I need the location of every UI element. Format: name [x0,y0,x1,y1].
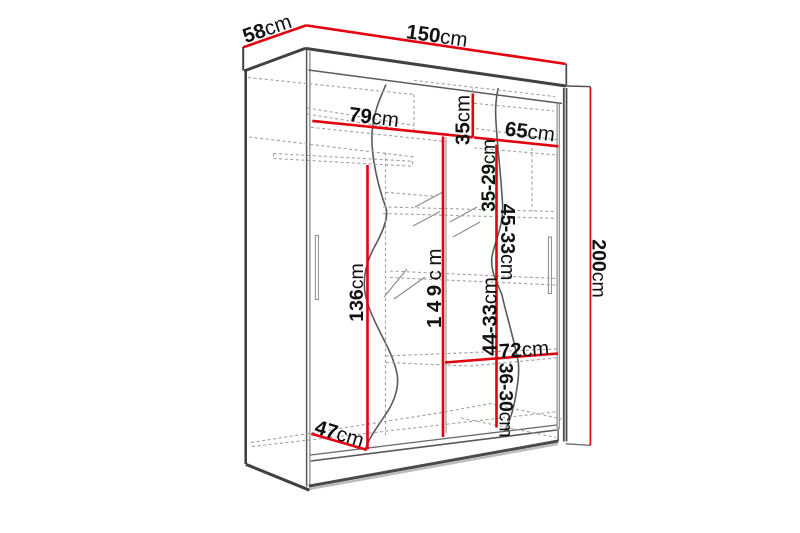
svg-text:35-29cm: 35-29cm [479,139,500,212]
svg-text:200cm: 200cm [588,239,610,298]
svg-text:35cm: 35cm [451,95,474,145]
svg-text:45-33cm: 45-33cm [496,204,518,280]
svg-text:72cm: 72cm [498,336,550,362]
svg-text:136cm: 136cm [346,263,368,322]
svg-text:149cm: 149cm [423,244,446,328]
svg-text:36-30cm: 36-30cm [495,363,517,437]
